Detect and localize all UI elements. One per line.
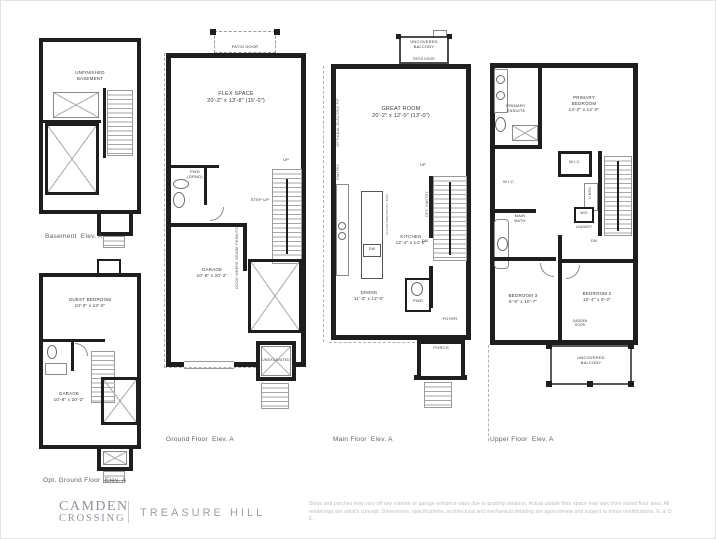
bedroom3-label: BEDROOM 3 9'-6" x 10'-7" (496, 293, 550, 305)
pantry-label: PANTRY (336, 164, 340, 180)
dishwasher-label: DW (363, 247, 381, 252)
kitchen-counter (336, 184, 349, 276)
door-note: DOOR WHERE GRADE PERMITS (235, 227, 239, 289)
interior-wall (43, 339, 105, 342)
balcony-post (546, 381, 552, 387)
entry-steps (103, 236, 125, 248)
interior-wall (538, 63, 542, 149)
toilet (47, 345, 57, 359)
shower (512, 125, 538, 141)
sink-bowl (496, 75, 505, 84)
wic-label: W.I.C. (494, 179, 524, 184)
toilet (411, 282, 423, 296)
floorplan-sheet: { "plans": { "basement": { "caption": "B… (0, 0, 716, 539)
opt-pantry-label: OPT. PANTRY (425, 191, 429, 217)
sink (173, 179, 189, 189)
crossed-garage-area (45, 123, 99, 195)
sink-bowl (338, 232, 346, 240)
porch-post (462, 375, 467, 380)
dining-label: DINING 11'-3" x 12'-0" (343, 290, 395, 302)
interior-wall (490, 257, 556, 261)
entry-steps (424, 382, 452, 408)
plan-caption: Basement Elev. A (45, 233, 103, 240)
great-room-label: GREAT ROOM 20'-2" x 12'-0" (13'-0") (361, 106, 441, 120)
interior-wall (490, 145, 542, 149)
porch-post (414, 375, 419, 380)
lot-line (164, 53, 165, 367)
garden-door-label: GARDEN DOOR (566, 319, 594, 327)
stairs (107, 90, 133, 156)
kitchen-island (361, 191, 383, 279)
vanity (45, 363, 67, 375)
toilet (173, 192, 185, 208)
grade-line (329, 342, 415, 343)
unfinished-basement-label: UNFINISHED BASEMENT (53, 70, 127, 82)
stair-rail (617, 161, 619, 231)
stair-up-label: UP (415, 162, 431, 167)
fireplace-note: OPTIONAL ELECTRIC F/P (336, 98, 340, 147)
primary-bedroom-label: PRIMARY BEDROOM 14'-0" x 12'-0" (548, 95, 620, 113)
primary-ensuite-label: PRIMARY ENSUITE (500, 103, 532, 113)
balcony-post (587, 381, 593, 387)
stair-up-label: UP (276, 157, 296, 162)
unexcavated-label: UNEXCAVATED (257, 358, 295, 363)
balcony-label: UNCOVERED BALCONY (401, 39, 447, 49)
camden-logo-line2: CROSSING (59, 514, 125, 525)
powder-room-label: PWD (GRND) (182, 169, 208, 179)
laundry-label: LAUNDRY (566, 225, 602, 229)
lot-line (323, 66, 324, 342)
wic-label: W.I.C. (560, 159, 590, 164)
interior-wall (562, 259, 636, 263)
plan-caption: Upper Floor Elev. A (490, 436, 554, 443)
main-floor-plan: UNCOVERED BALCONY PATIO DOOR GREAT ROOM … (329, 26, 477, 446)
interior-wall (103, 88, 106, 158)
flex-space-label: FLEX SPACE 20'-2" x 13'-8" (15'-0") (186, 91, 286, 105)
foyer-label: FOYER (433, 316, 467, 321)
garage-label: GARAGE 10'-8" x 20'-2" (43, 391, 95, 403)
ground-floor-plan: PATIO DOOR FLEX SPACE 20'-2" x 13'-8" (1… (164, 29, 316, 447)
camden-logo-line1: CAMDEN (59, 500, 129, 514)
toilet (497, 237, 508, 251)
patio-door-label: PATIO DOOR (405, 57, 443, 61)
washer-dryer-label: W/D (574, 211, 594, 216)
bedroom2-label: BEDROOM 2 10'-4" x 9'-2" (570, 291, 624, 303)
treasure-hill-logo: TREASURE HILL (140, 507, 265, 519)
interior-wall (71, 339, 74, 371)
disclaimer-text: Steps and porches may vary off any exter… (309, 501, 677, 524)
opt-ground-plan: GUEST BEDROOM 10'-0" x 13'-0" GARAGE 10'… (37, 259, 149, 487)
balcony-post (628, 343, 634, 349)
interior-wall (598, 151, 602, 236)
garage-wall (243, 223, 247, 271)
balcony-post (628, 381, 634, 387)
brand-divider (128, 501, 129, 523)
step-up-label: STEP UP (244, 197, 276, 202)
entry-steps (261, 383, 289, 409)
balcony-post (447, 34, 452, 39)
lot-line (488, 345, 489, 441)
bedroom-divider-wall (558, 235, 562, 345)
grade-line (164, 367, 256, 368)
linen-label: LINEN (588, 187, 592, 199)
garage-label: GARAGE 10'-8" x 20'-2" (182, 267, 242, 279)
patio-post (274, 29, 280, 35)
upper-floor-plan: PRIMARY ENSUITE PRIMARY BEDROOM 14'-0" x… (488, 61, 646, 453)
sink-bowl (496, 91, 505, 100)
basement-plan: UNFINISHED BASEMENT Basement Elev. A (37, 26, 149, 248)
porch-label: PORCH (419, 345, 463, 350)
guest-bedroom-label: GUEST BEDROOM 10'-0" x 13'-0" (53, 297, 127, 309)
powder-room-label: PWD (407, 298, 429, 303)
patio-outline (214, 31, 276, 53)
crossed-area (248, 259, 302, 333)
plan-caption: Ground Floor Elev. A (166, 436, 234, 443)
crossed-area (101, 377, 139, 425)
toilet (495, 117, 506, 132)
interior-wall (171, 165, 219, 168)
plan-caption: Main Floor Elev. A (333, 436, 393, 443)
patio-door-label: PATIO DOOR (220, 44, 270, 49)
stair-dn-label: DN (586, 238, 602, 243)
balcony-post (546, 343, 552, 349)
stair-rail (286, 179, 288, 254)
stair-rail (449, 182, 451, 255)
breakfast-bar-note: FLUSH BREAKFAST BAR (385, 194, 389, 235)
stair-dn-label: DN (417, 238, 433, 243)
crossed-area (53, 92, 99, 118)
sink-bowl (338, 222, 346, 230)
balcony-label: UNCOVERED BALCONY (558, 355, 624, 365)
crossed-porch (103, 451, 127, 465)
plan-caption: Opt. Ground Floor Elev. A (43, 477, 127, 484)
patio-post (210, 29, 216, 35)
